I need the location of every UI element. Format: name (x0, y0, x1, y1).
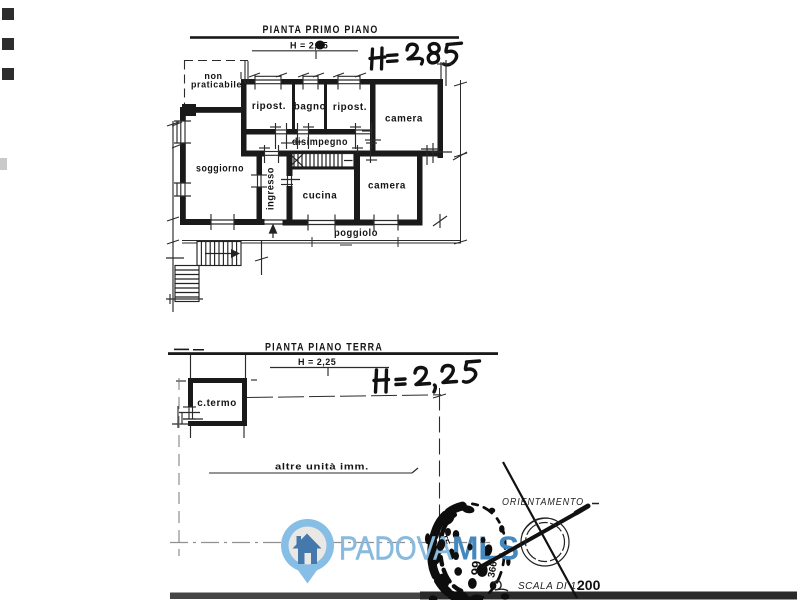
svg-text:ingresso: ingresso (266, 167, 277, 210)
svg-text:H = 2,25: H = 2,25 (298, 357, 336, 367)
svg-text:ORIENTAMENTO: ORIENTAMENTO (502, 497, 584, 508)
svg-text:camera: camera (368, 181, 406, 192)
svg-text:bagno: bagno (294, 102, 326, 113)
svg-text:soggiorno: soggiorno (196, 164, 244, 175)
svg-text:camera: camera (385, 114, 423, 125)
svg-text:PIANTA PRIMO PIANO: PIANTA PRIMO PIANO (263, 24, 379, 36)
svg-text:poggiolo: poggiolo (334, 228, 378, 239)
svg-text:200: 200 (577, 577, 601, 593)
svg-text:PIANTA PIANO TERRA: PIANTA PIANO TERRA (265, 342, 383, 354)
svg-text:cucina: cucina (303, 191, 338, 202)
svg-text:disimpegno: disimpegno (292, 137, 348, 148)
svg-text:ripost.: ripost. (252, 101, 286, 112)
svg-text:PADOVA: PADOVA (339, 530, 452, 567)
svg-text:ripost.: ripost. (333, 102, 367, 113)
svg-text:SCALA DI 1:: SCALA DI 1: (518, 581, 580, 592)
svg-text:MLS: MLS (452, 530, 519, 567)
svg-text:altre unità imm.: altre unità imm. (275, 462, 369, 473)
svg-text:c.termo: c.termo (197, 398, 237, 409)
svg-text:praticabile: praticabile (191, 80, 242, 90)
